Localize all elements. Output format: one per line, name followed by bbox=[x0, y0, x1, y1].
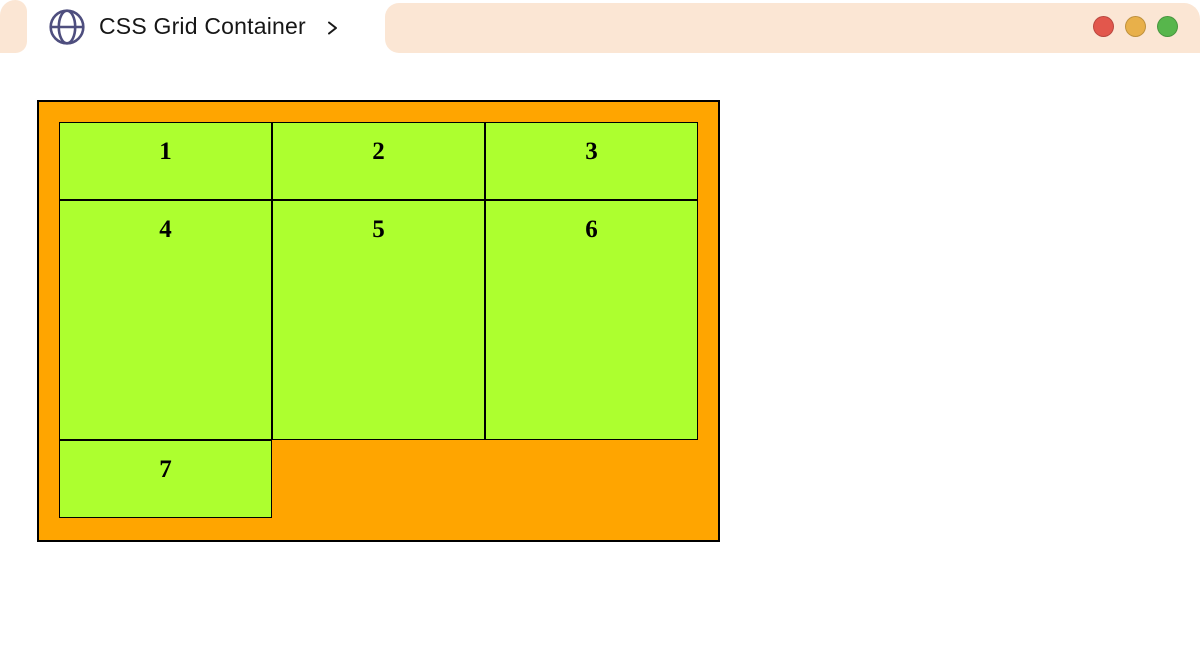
traffic-lights bbox=[1093, 0, 1178, 53]
browser-tab[interactable]: CSS Grid Container bbox=[24, 0, 385, 53]
grid-cell: 6 bbox=[485, 200, 698, 440]
minimize-button[interactable] bbox=[1125, 16, 1146, 37]
globe-icon bbox=[48, 8, 86, 46]
grid-cell: 1 bbox=[59, 122, 272, 200]
close-button[interactable] bbox=[1093, 16, 1114, 37]
grid-cell: 4 bbox=[59, 200, 272, 440]
browser-header: CSS Grid Container bbox=[0, 0, 1200, 53]
grid-cell: 7 bbox=[59, 440, 272, 518]
tab-title: CSS Grid Container bbox=[99, 13, 306, 40]
grid-cell: 3 bbox=[485, 122, 698, 200]
browser-window: CSS Grid Container 1 2 3 4 5 6 7 bbox=[0, 0, 1200, 542]
header-bar-right bbox=[385, 3, 1200, 53]
chevron-right-icon[interactable] bbox=[322, 18, 342, 38]
grid-cell: 2 bbox=[272, 122, 485, 200]
grid-container: 1 2 3 4 5 6 7 bbox=[37, 100, 720, 542]
header-bar-left bbox=[0, 0, 27, 53]
maximize-button[interactable] bbox=[1157, 16, 1178, 37]
grid-cell: 5 bbox=[272, 200, 485, 440]
